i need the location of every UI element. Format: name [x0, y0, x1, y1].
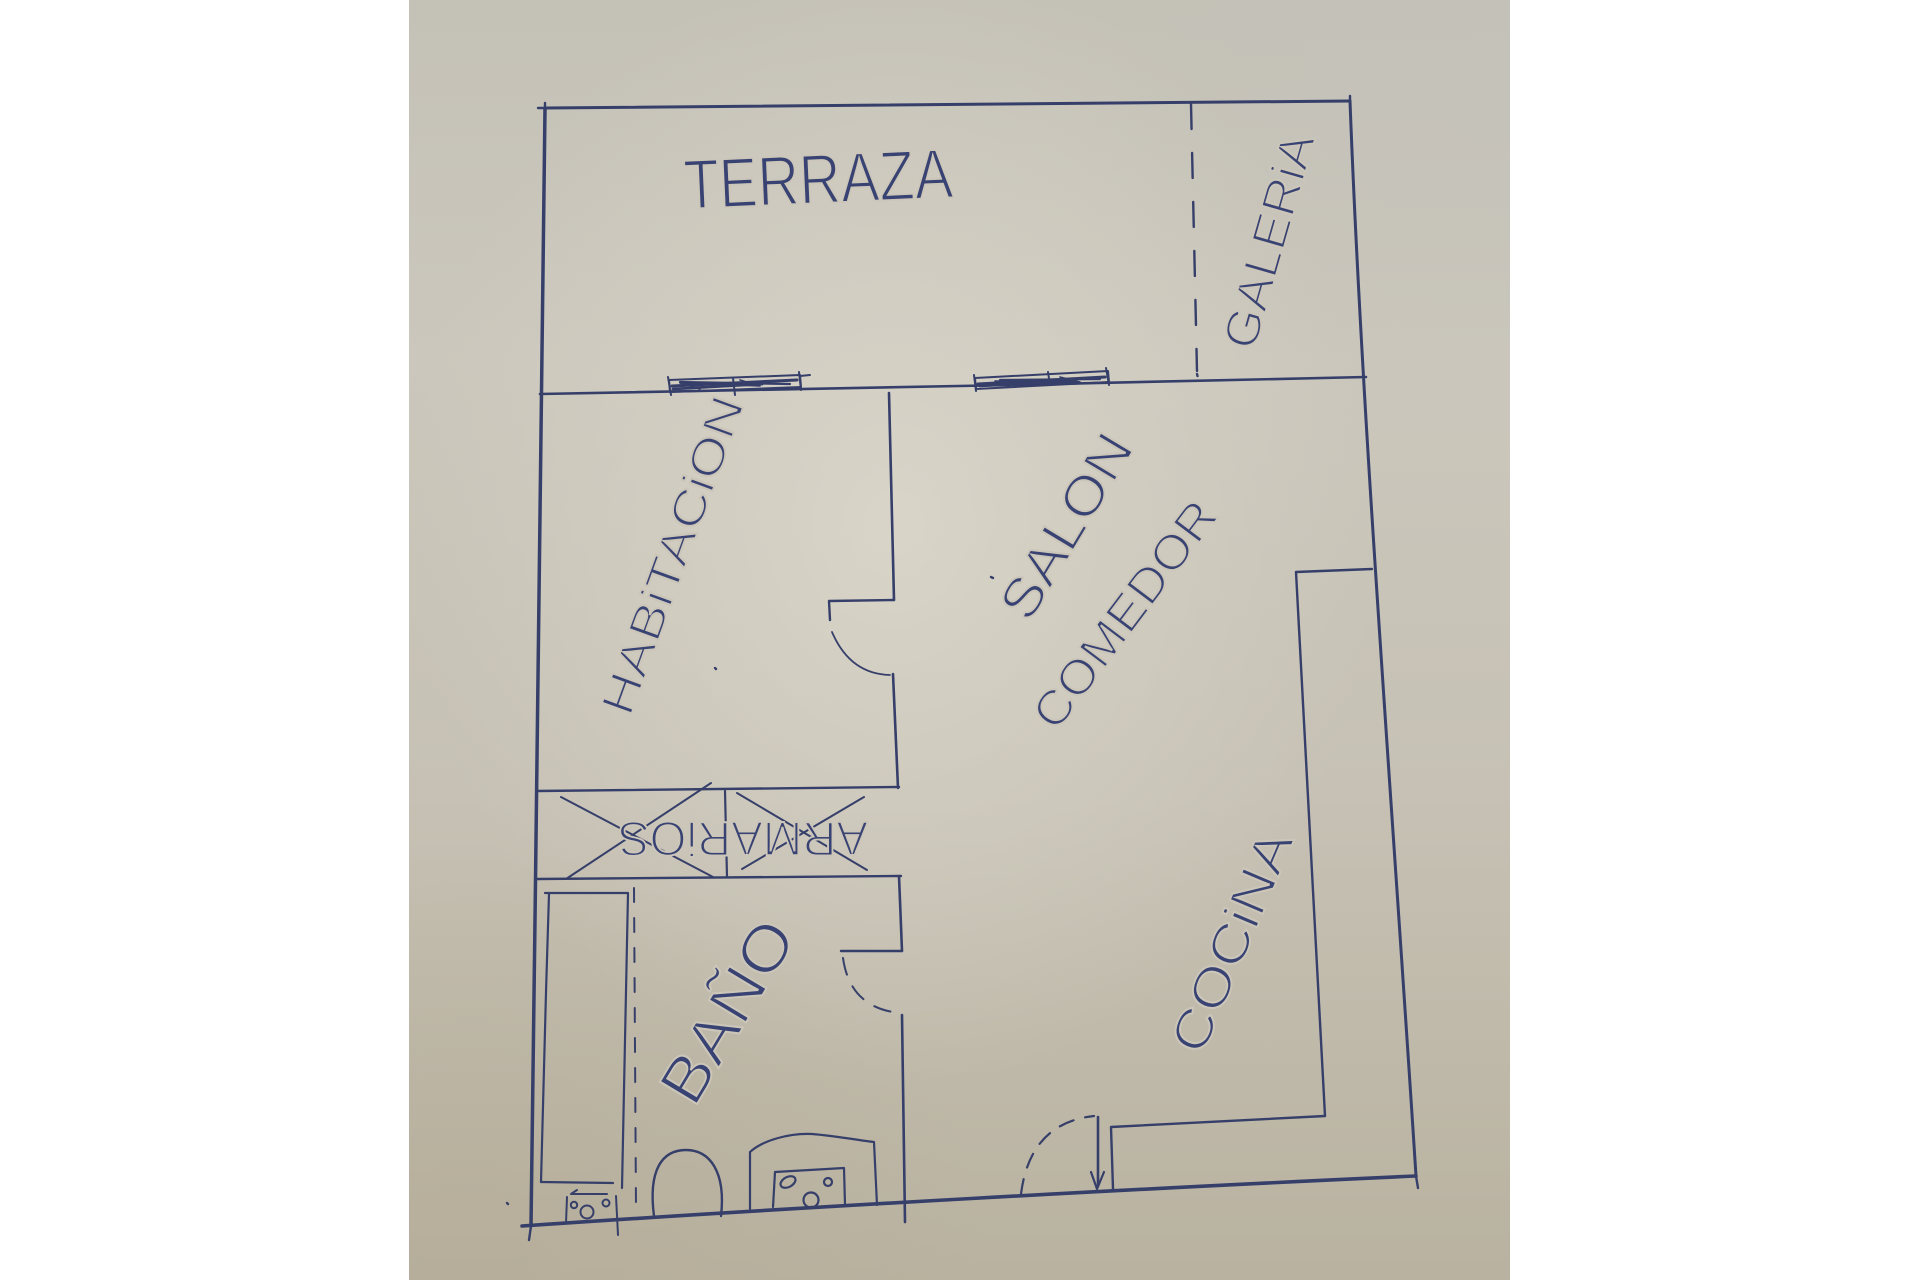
svg-text:TERRAZA: TERRAZA — [682, 134, 954, 224]
svg-text:ARMARiOS: ARMARiOS — [618, 811, 868, 864]
